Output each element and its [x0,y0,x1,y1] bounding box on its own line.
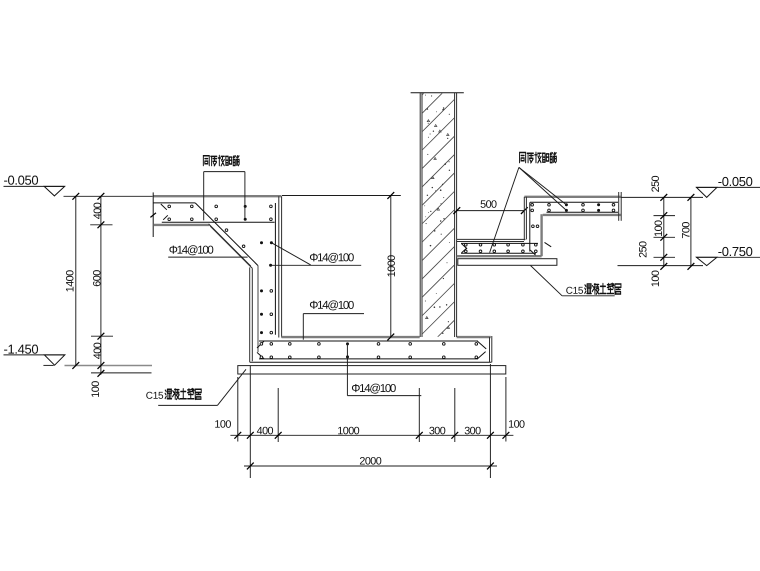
svg-text:300: 300 [464,425,481,437]
svg-text:100: 100 [214,419,231,431]
svg-text:Φ14@100: Φ14@100 [351,383,396,395]
svg-text:1000: 1000 [337,425,359,437]
svg-text:100: 100 [650,270,662,287]
svg-text:C15: C15 [146,391,164,402]
svg-text:300: 300 [429,425,446,437]
svg-text:400: 400 [257,425,274,437]
svg-text:250: 250 [638,241,650,258]
svg-text:400: 400 [92,202,104,219]
svg-text:-0.050: -0.050 [3,173,38,188]
svg-text:250: 250 [650,175,662,192]
svg-text:Φ14@100: Φ14@100 [309,252,354,264]
svg-text:100: 100 [90,381,102,398]
svg-text:1400: 1400 [65,270,77,292]
svg-text:-1.450: -1.450 [3,342,38,357]
svg-text:C15: C15 [566,286,584,297]
svg-text:-0.050: -0.050 [718,174,753,189]
svg-text:100: 100 [653,220,665,237]
svg-text:1000: 1000 [386,255,398,277]
svg-text:400: 400 [92,342,104,359]
svg-text:2000: 2000 [359,455,381,467]
svg-text:700: 700 [681,222,693,239]
svg-text:100: 100 [508,419,525,431]
svg-text:600: 600 [92,270,104,287]
svg-text:Φ14@100: Φ14@100 [169,245,214,257]
svg-text:Φ14@100: Φ14@100 [309,300,354,312]
svg-text:500: 500 [480,199,497,211]
svg-text:-0.750: -0.750 [718,244,753,259]
